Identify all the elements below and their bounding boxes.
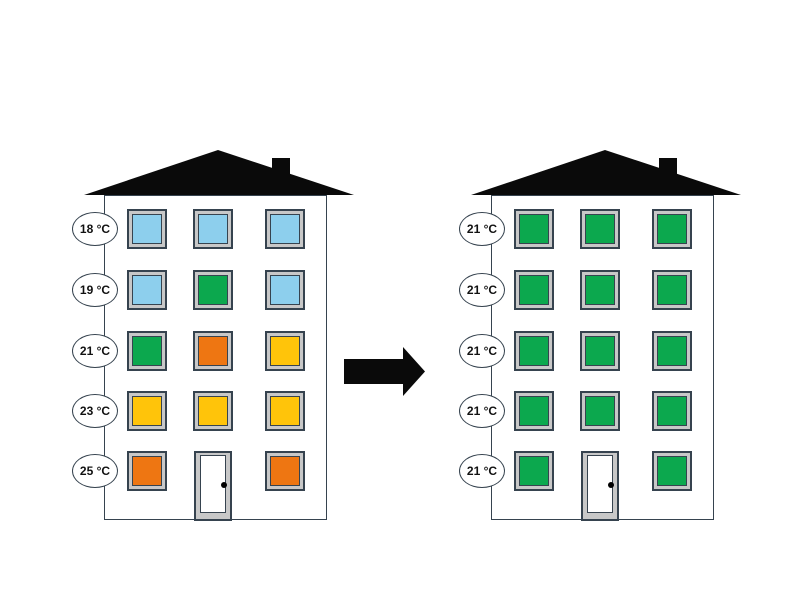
window-pane — [132, 275, 162, 305]
window-pane — [657, 456, 687, 486]
door-knob — [608, 482, 614, 488]
window-pane — [270, 456, 300, 486]
window-pane — [132, 336, 162, 366]
building-before: 18 °C19 °C21 °C23 °C25 °C — [83, 148, 355, 522]
temp-label: 21 °C — [459, 394, 505, 428]
roof-shape — [84, 150, 354, 195]
entrance-door — [194, 451, 232, 521]
window-pane — [198, 336, 228, 366]
window-pane — [198, 275, 228, 305]
building-after: 21 °C21 °C21 °C21 °C21 °C — [470, 148, 742, 522]
temp-label: 18 °C — [72, 212, 118, 246]
window-pane — [657, 336, 687, 366]
window-orange — [193, 331, 233, 371]
window-yellow — [265, 331, 305, 371]
door-panel — [200, 455, 226, 513]
window-green — [514, 270, 554, 310]
window-pane — [198, 396, 228, 426]
window-green — [652, 331, 692, 371]
door-knob — [221, 482, 227, 488]
roof-shape — [471, 150, 741, 195]
window-green — [580, 391, 620, 431]
temp-label: 23 °C — [72, 394, 118, 428]
window-yellow — [193, 391, 233, 431]
window-yellow — [265, 391, 305, 431]
window-orange — [127, 451, 167, 491]
window-blue — [265, 270, 305, 310]
window-pane — [585, 336, 615, 366]
window-pane — [519, 336, 549, 366]
window-pane — [585, 214, 615, 244]
temp-label: 19 °C — [72, 273, 118, 307]
window-pane — [657, 214, 687, 244]
window-yellow — [127, 391, 167, 431]
window-green — [652, 270, 692, 310]
window-blue — [127, 270, 167, 310]
window-pane — [657, 275, 687, 305]
window-pane — [519, 275, 549, 305]
window-pane — [270, 275, 300, 305]
window-green — [193, 270, 233, 310]
window-green — [514, 391, 554, 431]
temp-label: 21 °C — [459, 273, 505, 307]
window-blue — [127, 209, 167, 249]
window-green — [514, 331, 554, 371]
window-orange — [265, 451, 305, 491]
window-pane — [132, 396, 162, 426]
window-green — [127, 331, 167, 371]
window-blue — [265, 209, 305, 249]
window-green — [580, 209, 620, 249]
diagram-canvas: 18 °C19 °C21 °C23 °C25 °C 21 °C21 °C21 °… — [0, 0, 800, 600]
door-panel — [587, 455, 613, 513]
entrance-door — [581, 451, 619, 521]
temp-label: 21 °C — [72, 334, 118, 368]
transition-arrow-icon — [344, 347, 426, 396]
temp-label: 21 °C — [459, 454, 505, 488]
window-pane — [519, 396, 549, 426]
window-green — [580, 270, 620, 310]
roof — [470, 148, 742, 196]
window-green — [580, 331, 620, 371]
window-pane — [657, 396, 687, 426]
window-green — [652, 209, 692, 249]
temp-label: 21 °C — [459, 334, 505, 368]
window-green — [514, 209, 554, 249]
window-green — [652, 451, 692, 491]
temp-label: 25 °C — [72, 454, 118, 488]
window-pane — [519, 214, 549, 244]
window-green — [514, 451, 554, 491]
window-pane — [270, 214, 300, 244]
window-pane — [270, 396, 300, 426]
roof — [83, 148, 355, 196]
temp-label: 21 °C — [459, 212, 505, 246]
window-pane — [270, 336, 300, 366]
window-pane — [519, 456, 549, 486]
window-pane — [132, 456, 162, 486]
window-pane — [198, 214, 228, 244]
window-green — [652, 391, 692, 431]
window-pane — [585, 275, 615, 305]
window-blue — [193, 209, 233, 249]
window-pane — [585, 396, 615, 426]
window-pane — [132, 214, 162, 244]
